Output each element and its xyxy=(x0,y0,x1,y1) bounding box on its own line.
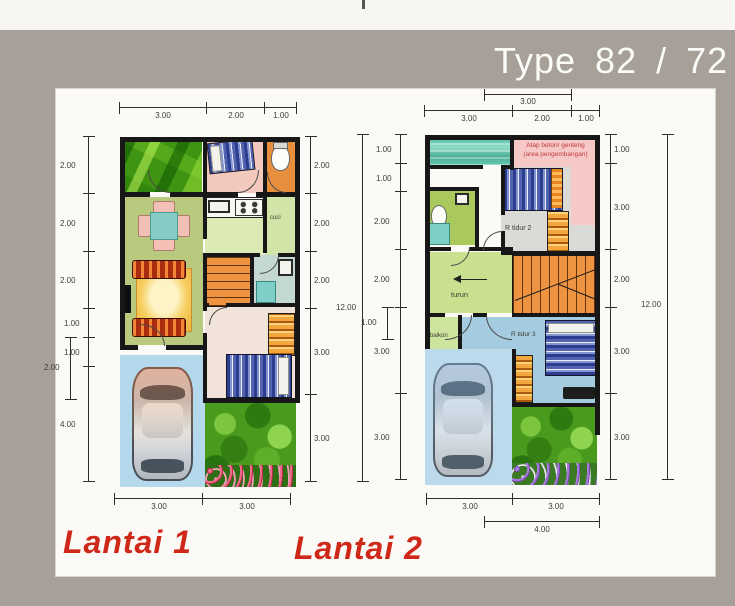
dim-label: 1.00 xyxy=(578,114,594,123)
dim-label: 1.00 xyxy=(376,174,392,183)
tv xyxy=(124,285,131,313)
dining-set xyxy=(138,201,188,249)
wall xyxy=(203,398,300,403)
pillow xyxy=(210,145,223,172)
dim-segment xyxy=(400,135,401,164)
wall xyxy=(120,345,138,350)
bed xyxy=(226,354,292,398)
dim-segment xyxy=(610,250,611,308)
dim-segment xyxy=(310,137,311,194)
dim-label: 2.00 xyxy=(374,217,390,226)
wall xyxy=(226,303,300,307)
dim-segment xyxy=(400,308,401,394)
flower-bed xyxy=(205,465,296,487)
bedroom2-label: R tidur 2 xyxy=(505,225,531,232)
bath-sink xyxy=(278,259,293,276)
wall xyxy=(278,253,300,257)
dim-label: 3.00 xyxy=(548,502,564,511)
dim-label: 3.00 xyxy=(314,348,330,357)
dim-label: 3.00 xyxy=(155,111,171,120)
wall xyxy=(263,137,267,195)
wall xyxy=(512,349,516,405)
wall xyxy=(425,313,445,317)
toilet-tank xyxy=(273,142,288,149)
wall xyxy=(166,345,203,350)
wardrobe xyxy=(513,355,533,403)
laundry-label: cuci xyxy=(270,215,281,221)
dim-segment xyxy=(70,338,71,400)
dim-segment xyxy=(610,308,611,394)
dim-segment xyxy=(265,107,297,108)
kitchen-sink xyxy=(208,200,230,213)
dim-segment xyxy=(310,252,311,309)
dim-label: 2.00 xyxy=(228,111,244,120)
car-reflection xyxy=(433,363,493,477)
stair-break-line xyxy=(559,284,600,301)
wall xyxy=(512,403,597,407)
dim-label: 3.00 xyxy=(462,502,478,511)
wall xyxy=(263,197,267,253)
stairs-up xyxy=(205,253,252,307)
dim-label: 12.00 xyxy=(641,300,661,309)
dim-segment xyxy=(207,107,265,108)
dim-label: 3.00 xyxy=(614,347,630,356)
dim-label: 2.00 xyxy=(60,219,76,228)
wall xyxy=(501,251,597,255)
dim-segment xyxy=(310,395,311,482)
dim-segment xyxy=(310,194,311,252)
dim-segment xyxy=(400,192,401,250)
dim-label: 12.00 xyxy=(336,303,356,312)
dim-segment xyxy=(115,498,203,499)
sofa xyxy=(132,260,186,279)
dim-segment xyxy=(88,309,89,338)
dim-segment xyxy=(88,137,89,194)
bedroom3-label: R tidur 3 xyxy=(511,331,536,338)
wall xyxy=(512,313,597,317)
dim-segment xyxy=(88,194,89,252)
dim-label: 2.00 xyxy=(374,275,390,284)
page-title: Type 82 / 72 xyxy=(494,40,728,82)
dim-segment xyxy=(310,309,311,395)
stair-break-line xyxy=(515,268,598,300)
dim-label: 2.00 xyxy=(314,219,330,228)
dim-label: 3.00 xyxy=(314,434,330,443)
dim-label: 2.00 xyxy=(44,363,60,372)
stairs-down-label: turun xyxy=(451,290,468,299)
wall xyxy=(250,257,254,303)
chair xyxy=(177,215,190,237)
shower-tray xyxy=(256,281,276,303)
dim-segment xyxy=(88,367,89,482)
wall xyxy=(425,165,483,169)
dim-segment xyxy=(667,135,668,480)
car xyxy=(132,367,193,481)
dim-segment xyxy=(610,394,611,480)
registration-tick xyxy=(362,0,365,9)
wall xyxy=(425,247,451,251)
pillow xyxy=(548,323,594,333)
arrow-head xyxy=(453,275,461,283)
plan-lantai-1: cuci xyxy=(120,137,300,487)
pillow xyxy=(278,357,289,395)
dim-segment xyxy=(88,252,89,309)
wall xyxy=(595,135,600,435)
dim-segment xyxy=(572,110,600,111)
canopy-roof xyxy=(428,138,510,165)
dim-segment xyxy=(513,110,572,111)
dim-segment xyxy=(400,394,401,480)
dim-segment xyxy=(400,164,401,192)
wall xyxy=(203,333,207,402)
door-arc xyxy=(483,231,502,250)
dim-label: 3.00 xyxy=(614,433,630,442)
bed xyxy=(545,320,597,376)
dresser xyxy=(563,387,595,399)
dim-label: 3.00 xyxy=(239,502,255,511)
wardrobe xyxy=(547,211,569,253)
dim-label: 1.00 xyxy=(64,348,80,357)
dim-label: 1.00 xyxy=(376,145,392,154)
dim-label: 4.00 xyxy=(60,420,76,429)
wall xyxy=(120,137,300,142)
dining-table xyxy=(150,212,178,240)
stove xyxy=(235,199,263,216)
back-garden xyxy=(205,403,296,487)
dim-label: 3.00 xyxy=(614,203,630,212)
wall xyxy=(120,137,125,350)
wall xyxy=(203,303,209,307)
dim-label: 1.00 xyxy=(273,111,289,120)
wall xyxy=(425,187,477,191)
bed xyxy=(503,168,563,211)
wall xyxy=(475,187,479,251)
bed xyxy=(207,139,256,175)
dim-segment xyxy=(120,107,207,108)
dim-label: 2.00 xyxy=(614,275,630,284)
dim-label: 2.00 xyxy=(60,161,76,170)
dim-label: 1.00 xyxy=(614,145,630,154)
flower-bed xyxy=(512,463,597,485)
dim-label: 1.00 xyxy=(64,319,80,328)
floor-label-lantai-2: Lantai 2 xyxy=(294,530,423,567)
dim-segment xyxy=(387,308,388,340)
wall xyxy=(203,197,207,239)
dim-label: 2.00 xyxy=(314,276,330,285)
wall xyxy=(501,167,505,215)
dim-segment xyxy=(203,498,291,499)
dim-label: 3.00 xyxy=(151,502,167,511)
wall xyxy=(473,313,487,317)
dim-label: 3.00 xyxy=(520,97,536,106)
wall xyxy=(203,137,207,195)
back-garden xyxy=(512,407,597,485)
wall xyxy=(295,137,300,403)
stairs-down xyxy=(512,255,599,315)
dim-segment xyxy=(610,135,611,164)
shower-tray xyxy=(428,223,450,245)
dim-segment xyxy=(485,521,600,522)
car-reflection xyxy=(132,367,193,481)
blanket xyxy=(551,169,562,208)
plan-lantai-2: Atap beton/ genteng (area pengembangan) … xyxy=(425,135,600,485)
dim-segment xyxy=(427,498,513,499)
floorplan-sheet: Type 82 / 72 cuci xyxy=(0,0,735,606)
dim-label: 2.00 xyxy=(534,114,550,123)
wardrobe xyxy=(268,313,295,356)
dim-label: 3.00 xyxy=(374,433,390,442)
dim-label: 4.00 xyxy=(534,525,550,534)
dim-label: 1.00 xyxy=(361,318,377,327)
dim-label: 3.00 xyxy=(374,347,390,356)
dim-label: 2.00 xyxy=(60,276,76,285)
dim-segment xyxy=(88,338,89,367)
dim-label: 3.00 xyxy=(461,114,477,123)
down-arrow-icon xyxy=(453,275,487,284)
roof-expansion-strip xyxy=(571,167,597,225)
dim-segment xyxy=(610,164,611,250)
dim-label: 2.00 xyxy=(314,161,330,170)
laundry-area xyxy=(265,197,295,255)
wall xyxy=(120,192,150,197)
bath-sink xyxy=(455,193,469,205)
car xyxy=(433,363,493,477)
dim-segment xyxy=(400,250,401,308)
dim-segment xyxy=(485,94,572,95)
dim-segment xyxy=(425,110,513,111)
roof-area-label-2: (area pengembangan) xyxy=(514,151,597,158)
dim-segment xyxy=(362,135,363,482)
arrow-line xyxy=(460,279,487,280)
floor-label-lantai-1: Lantai 1 xyxy=(63,524,192,561)
dim-segment xyxy=(513,498,600,499)
roof-area-label-1: Atap beton/ genteng xyxy=(514,142,597,149)
